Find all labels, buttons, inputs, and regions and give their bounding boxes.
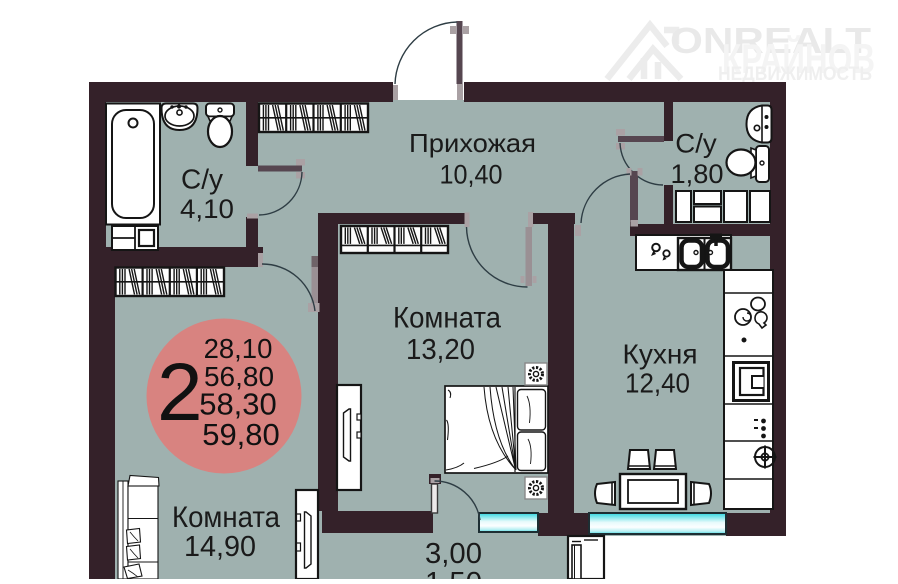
svg-text:12,40: 12,40: [625, 368, 690, 399]
svg-text:Кухня: Кухня: [623, 339, 698, 370]
svg-text:28,10: 28,10: [204, 333, 273, 364]
svg-text:С/у: С/у: [181, 164, 223, 195]
svg-text:2: 2: [157, 347, 203, 438]
svg-text:НЕДВИЖИМОСТЬ: НЕДВИЖИМОСТЬ: [718, 64, 872, 85]
svg-text:Комната: Комната: [172, 501, 280, 534]
svg-text:3,00: 3,00: [425, 538, 482, 570]
svg-text:1,50: 1,50: [425, 567, 482, 579]
svg-text:13,20: 13,20: [406, 334, 475, 366]
svg-text:10,40: 10,40: [440, 160, 503, 190]
svg-text:14,90: 14,90: [184, 531, 256, 563]
svg-text:4,10: 4,10: [180, 194, 234, 224]
svg-text:Комната: Комната: [393, 302, 501, 335]
svg-text:С/у: С/у: [675, 129, 717, 159]
svg-text:59,80: 59,80: [202, 417, 280, 452]
svg-text:1,80: 1,80: [671, 159, 724, 189]
svg-text:Прихожая: Прихожая: [409, 128, 536, 158]
